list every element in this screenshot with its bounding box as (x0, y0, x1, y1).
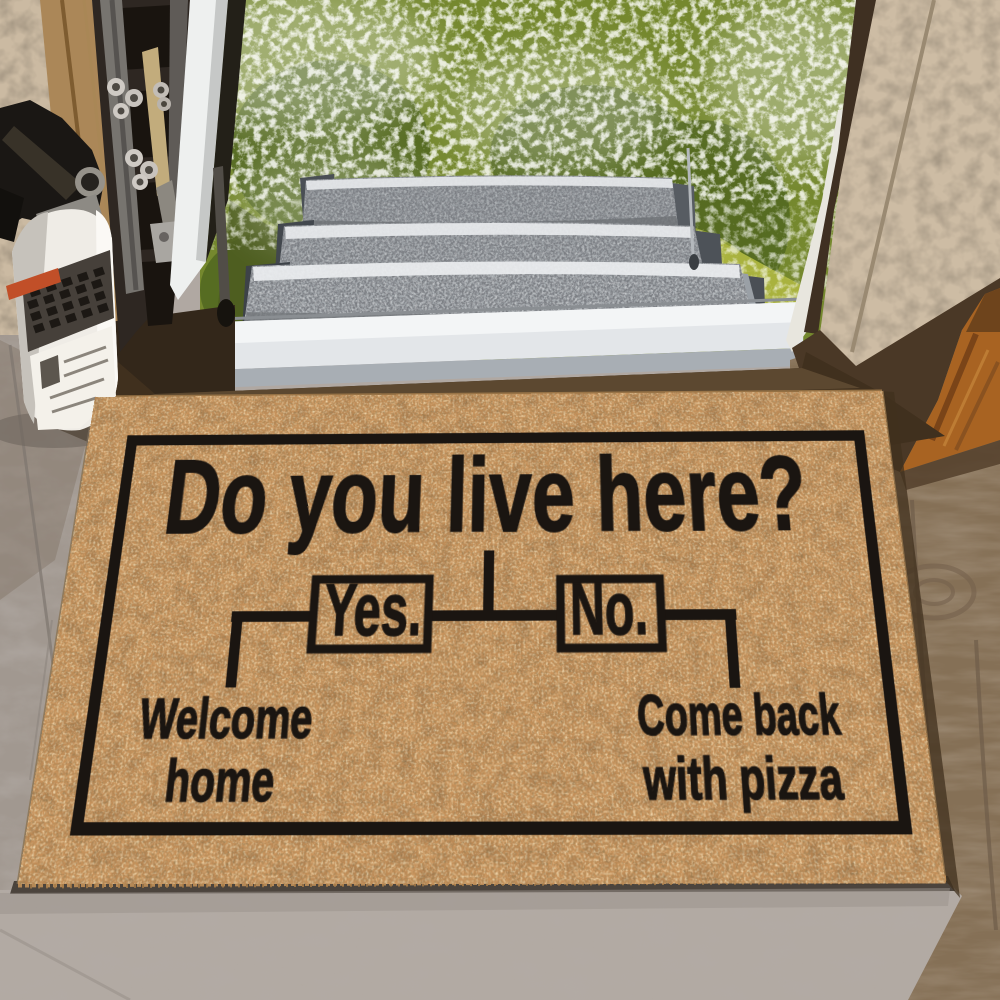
svg-text:with pizza: with pizza (641, 746, 847, 813)
svg-text:Do you live here?: Do you live here? (159, 436, 813, 556)
svg-text:home: home (162, 749, 278, 815)
svg-text:Come back: Come back (636, 683, 843, 748)
svg-text:No.: No. (569, 568, 649, 651)
svg-text:Welcome: Welcome (136, 687, 315, 751)
svg-text:Yes.: Yes. (321, 569, 423, 652)
